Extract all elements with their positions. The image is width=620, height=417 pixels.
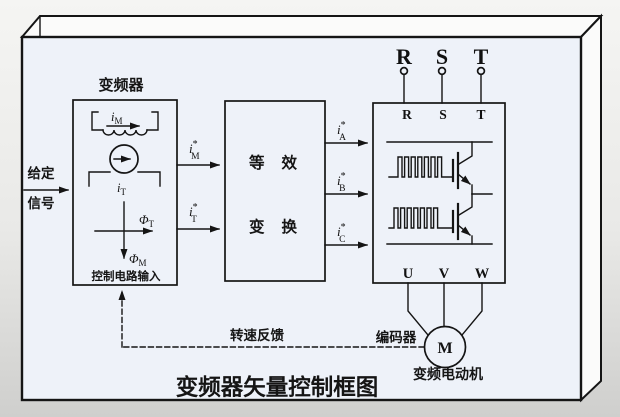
outer-3d-frame (22, 16, 601, 400)
diagram-title: 变频器矢量控制框图 (176, 374, 379, 401)
inverter-r-label: R (402, 107, 412, 122)
encoder-label: 编码器 (376, 329, 417, 346)
inverter-v-label: V (439, 266, 450, 282)
given-signal-label-line2: 信号 (28, 195, 55, 212)
vector-control-diagram: 给定 信号 变频器 iM iT ΦT ΦM 控制电路 (0, 0, 620, 417)
supply-s-label: S (436, 44, 448, 69)
inverter-t-label: T (476, 107, 485, 122)
inverter-u-label: U (403, 266, 414, 282)
motor-label: 变频电动机 (413, 366, 483, 383)
supply-t-label: T (474, 44, 489, 69)
given-signal-label-line1: 给定 (28, 165, 55, 182)
transform-label-line2: 变换 (249, 217, 314, 236)
inverter-s-label: S (439, 107, 447, 122)
converter-footer-label: 控制电路输入 (92, 269, 161, 283)
converter-title: 变频器 (98, 76, 144, 94)
inverter-w-label: W (475, 266, 490, 282)
speed-feedback-label: 转速反馈 (230, 327, 284, 344)
motor-symbol: M (437, 340, 452, 357)
supply-r-label: R (396, 44, 413, 69)
slab-right-face (581, 16, 601, 400)
slab-top-face (22, 16, 601, 37)
transform-label-line1: 等效 (248, 153, 314, 172)
diagram-svg: 给定 信号 变频器 iM iT ΦT ΦM 控制电路 (0, 0, 620, 417)
